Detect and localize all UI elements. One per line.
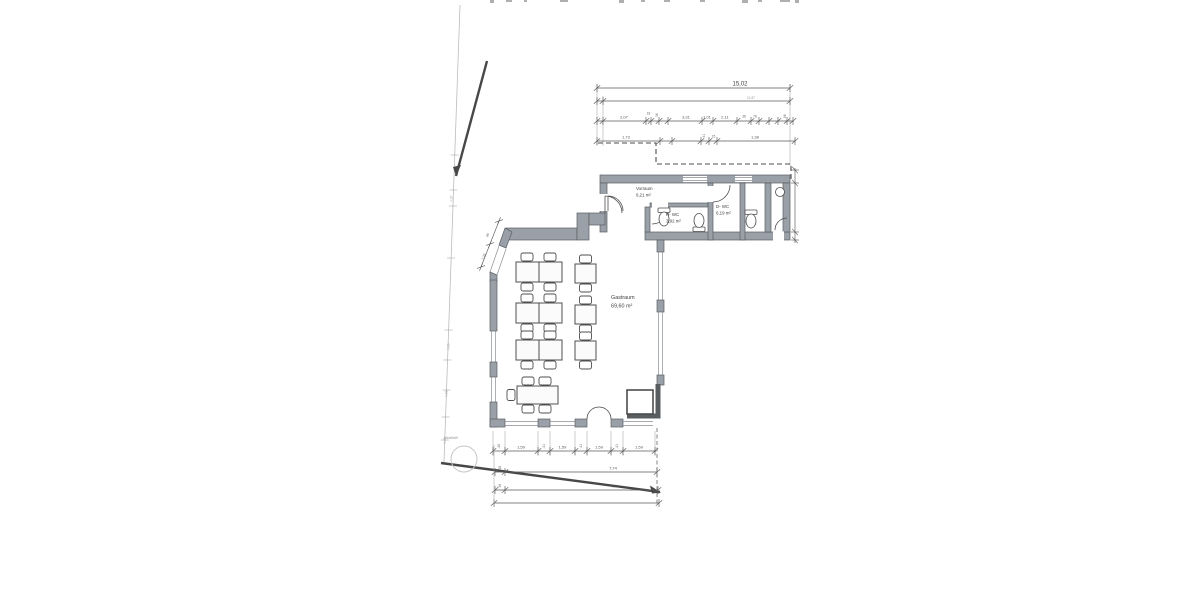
double-table — [516, 253, 562, 291]
room-area-gastraum: 69,60 m² — [611, 304, 632, 310]
room-name-vorraum: Vorraum — [636, 186, 653, 191]
dim-label: 7,76 — [611, 484, 620, 489]
floorplan-drawing: 1,37 1,95 1,95 1,45 Metallstift 15,02 11… — [0, 0, 1200, 600]
double-table — [516, 331, 562, 369]
toilet — [745, 210, 757, 228]
room-area-dwc: 6,19 m² — [716, 211, 731, 216]
toilet — [693, 214, 705, 232]
dim-label: 41 — [702, 134, 706, 138]
survey-dim-label: 1,95 — [444, 390, 448, 397]
room-name-hwc: H- WC — [666, 212, 679, 217]
dim-label: 1,59 — [635, 445, 644, 450]
counter-fixture — [627, 390, 653, 414]
dim-label: 1,59 — [559, 445, 568, 450]
dim-subtotal: 11,87 — [747, 96, 755, 100]
top-dimension-chain: 15,02 11,87 2,07 18 36 3,31 1,01 2,11 36… — [594, 82, 798, 183]
scanned-floorplan-page: 1,37 1,95 1,95 1,45 Metallstift 15,02 11… — [0, 0, 1200, 600]
dim-label: 36 — [498, 466, 502, 470]
dim-label: 36 — [498, 484, 502, 488]
dim-label: 36 — [742, 115, 746, 119]
bottom-dimension-chains: ,48 1,59 ,41 1,59 ,41 1,59 ,41 1,59 36 7… — [490, 428, 662, 507]
dim-label: 36 — [655, 113, 659, 117]
right-dimension-line — [791, 167, 799, 243]
long-table — [507, 377, 558, 413]
survey-marker-label: Metallstift — [444, 436, 458, 440]
dim-label: 1,73 — [622, 135, 631, 140]
dim-label: 2,11 — [721, 115, 729, 120]
dim-label: 1,38 — [751, 135, 760, 140]
dim-label: 86 — [783, 114, 787, 118]
double-door-arc-right — [599, 407, 611, 419]
room-area-vorraum: 9,21 m² — [636, 193, 651, 198]
single-table — [575, 296, 596, 333]
dim-label: ,48 — [497, 444, 501, 449]
scan-artifacts — [490, 0, 799, 3]
dim-label: ,41 — [615, 444, 619, 449]
survey-dim-label: 1,95 — [446, 343, 450, 350]
survey-dim-label: 1,37 — [449, 195, 453, 202]
dining-tables — [507, 253, 596, 413]
dim-label: 60 — [485, 232, 490, 237]
dim-label: 18 — [647, 112, 651, 116]
sink — [776, 188, 785, 197]
room-name-gastraum: Gastraum — [611, 295, 635, 301]
dim-label: ,41 — [579, 444, 583, 449]
door-arc-dwc — [713, 185, 730, 202]
dim-label: 1,01 — [703, 115, 712, 120]
wc-block-walls — [599, 175, 790, 241]
room-name-dwc: D- WC — [716, 204, 729, 209]
dim-label: 76 — [753, 115, 757, 119]
door-arc-vorraum-entry — [608, 196, 623, 211]
dim-label: ,41 — [542, 444, 546, 449]
dim-label: 1,59 — [517, 445, 526, 450]
double-table — [516, 294, 562, 332]
dim-label: 7,74 — [609, 466, 618, 471]
room-area-hwc: 3,92 m² — [666, 219, 681, 224]
dim-label: 1,59 — [595, 445, 604, 450]
single-table — [575, 332, 596, 369]
double-door-arc-left — [587, 407, 599, 419]
dim-total: 15,02 — [732, 82, 748, 88]
boundary-line-upper — [456, 61, 487, 176]
dim-label: 2,07 — [620, 115, 629, 120]
site-boundary: 1,37 1,95 1,95 1,45 Metallstift — [441, 5, 661, 494]
dim-label: 3,31 — [682, 115, 691, 120]
slant-wall-upper — [499, 228, 512, 248]
dim-label: 15 — [712, 135, 716, 139]
survey-point-circle — [451, 446, 477, 472]
single-table — [575, 255, 596, 292]
